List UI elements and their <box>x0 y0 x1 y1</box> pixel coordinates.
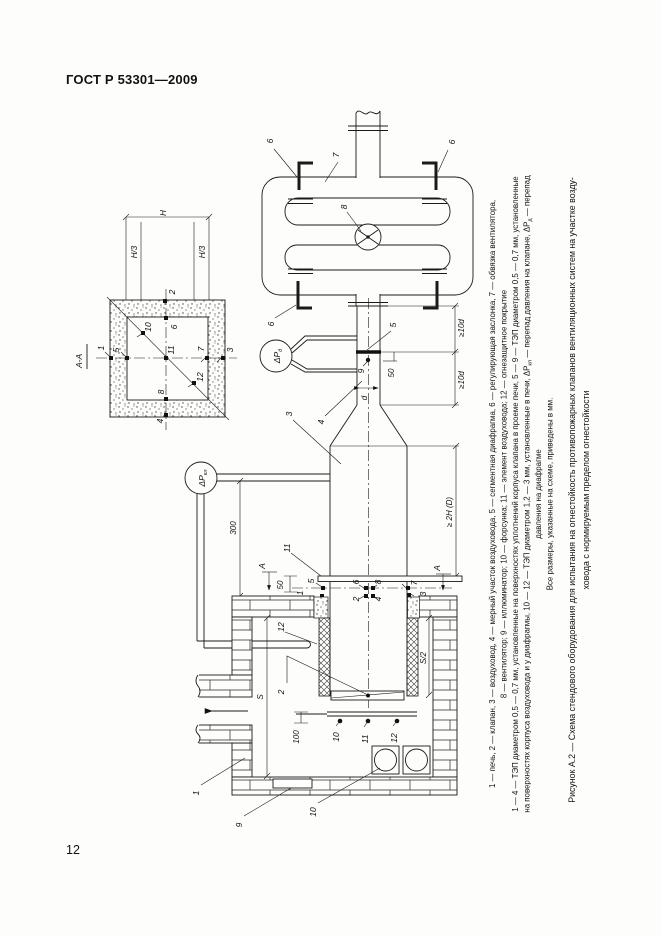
callout-coating: 12 <box>276 622 286 632</box>
callout-1: 1 <box>96 345 106 350</box>
callout-valve: 2 <box>276 689 286 695</box>
window-slot <box>273 779 312 788</box>
callout-12: 12 <box>195 372 205 382</box>
coating-right <box>407 618 418 696</box>
dim-d: d <box>360 395 369 400</box>
callout-10: 10 <box>143 322 153 332</box>
callout-fan: 8 <box>339 204 349 209</box>
seal-left <box>314 597 328 618</box>
callout-tc11: 11 <box>360 734 370 743</box>
callout-11: 11 <box>166 345 176 354</box>
callout-damper-tr: 6 <box>447 139 457 144</box>
callout-tc9: 9 <box>356 368 366 373</box>
dim-300: 300 <box>229 521 238 535</box>
dim-H3-left: Н/3 <box>130 245 139 258</box>
dim-H3-right: Н/3 <box>198 245 207 258</box>
callout-furnace: 1 <box>191 790 201 795</box>
section-mark-left: А <box>257 563 267 570</box>
dim-2HD: ≥ 2H (D) <box>445 497 454 528</box>
callout-v1: 1 <box>295 590 305 595</box>
legend-line-4: на поверхностях корпуса воздуховода и у … <box>523 175 534 813</box>
legend-line-3: 1 — 4 — ТЭП диаметром 0,5 — 0,7 мм, уста… <box>511 176 520 812</box>
callout-damper-bl: 6 <box>266 321 276 326</box>
tc-dots-furnace <box>296 712 417 727</box>
callout-tc10: 10 <box>331 732 341 742</box>
tc-dots-valve <box>316 583 414 599</box>
figure-drawing: А-А Н Н/3 Н/3 <box>0 0 661 936</box>
callout-2: 2 <box>167 289 177 295</box>
dim-10d-upper: ≥10d <box>457 319 466 337</box>
section-aa-view: А-А Н Н/3 Н/3 <box>74 210 237 430</box>
valve-blade <box>331 691 404 700</box>
callout-v7: 7 <box>409 580 419 585</box>
callout-3: 3 <box>225 347 235 352</box>
burner-ports <box>372 746 430 774</box>
dim-50-valve: 50 <box>276 580 285 589</box>
tc-dot-9 <box>366 358 370 362</box>
callout-measuring: 4 <box>316 419 326 424</box>
callout-5: 5 <box>111 347 121 352</box>
coating-left <box>319 618 330 696</box>
section-aa-title: А-А <box>74 354 84 370</box>
dim-S: S <box>256 694 265 700</box>
callout-illuminator: 9 <box>234 822 244 827</box>
callout-loop: 7 <box>331 152 341 157</box>
figure-legend: 1 — печь, 2 — клапан, 3 — воздуховод, 4 … <box>488 175 591 813</box>
furnace: 10 11 12 100 S S/2 12 2 <box>191 582 457 827</box>
dim-100: 100 <box>292 730 301 744</box>
callout-burner: 10 <box>308 807 318 817</box>
callout-v5: 5 <box>306 578 316 583</box>
valve-flange <box>318 576 462 582</box>
seal-right <box>408 597 420 618</box>
figure-caption-line-2: ховода с нормируемым пределом огнестойко… <box>581 390 591 589</box>
fan-assembly: 6 6 6 7 8 <box>262 108 473 326</box>
dim-H: Н <box>159 210 168 216</box>
legend-note: Все размеры, указанные на схеме, приведе… <box>546 398 555 591</box>
callout-duct-element: 11 <box>282 543 292 552</box>
figure-caption-line-1: Рисунок А.2 — Схема стендового оборудова… <box>567 177 577 803</box>
callout-v8: 8 <box>373 579 383 584</box>
legend-line-2: 8 — вентилятор; 9 — иллюминатор; 10 — фо… <box>500 289 509 698</box>
legend-line-1: 1 — печь, 2 — клапан, 3 — воздуховод, 4 … <box>488 200 497 788</box>
flue <box>193 673 252 745</box>
callout-4: 4 <box>155 418 165 423</box>
callout-v6: 6 <box>351 579 361 584</box>
dim-10d-lower: ≥10d <box>457 371 466 389</box>
callout-damper-tl: 6 <box>265 138 275 143</box>
callout-tc12: 12 <box>389 733 399 743</box>
callout-8: 8 <box>156 389 166 394</box>
dim-S2: S/2 <box>419 651 428 664</box>
dim-50-diaphragm: 50 <box>387 368 396 377</box>
callout-6: 6 <box>169 324 179 329</box>
callout-v4: 4 <box>373 596 383 601</box>
document-page: ГОСТ Р 53301—2009 12 А-А <box>0 0 661 936</box>
legend-line-5: давления на диафрагме <box>534 449 543 539</box>
callout-duct: 3 <box>284 411 294 416</box>
callout-diaphragm: 5 <box>388 322 398 327</box>
section-mark-right: А <box>432 565 442 572</box>
callout-v2: 2 <box>351 596 361 602</box>
callout-7: 7 <box>196 346 206 351</box>
